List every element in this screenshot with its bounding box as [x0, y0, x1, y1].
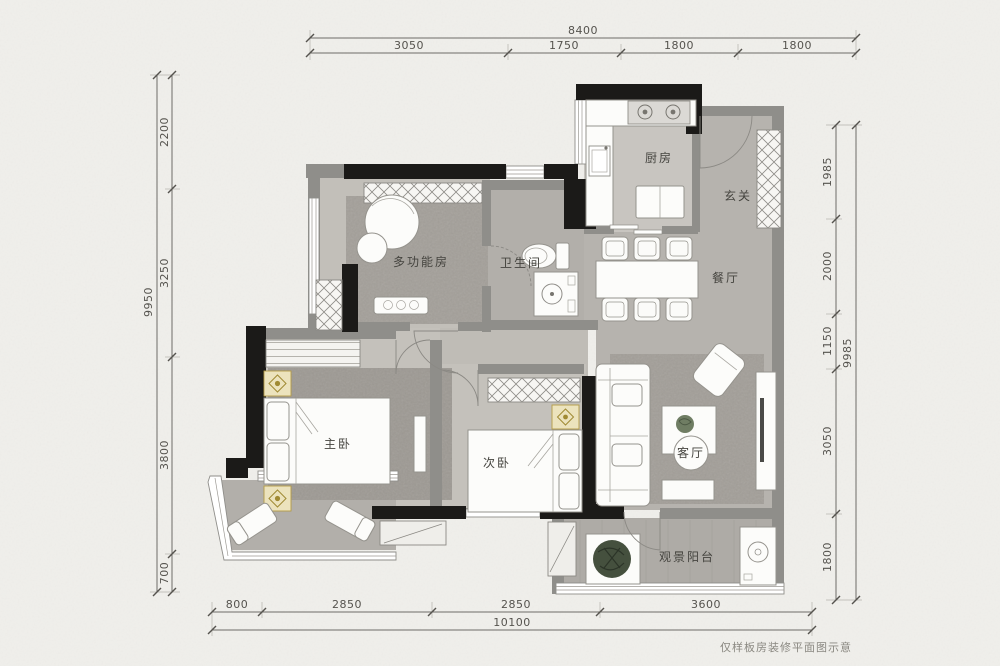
dim-bottom-total: 10100 — [493, 616, 531, 629]
room-label-dining: 餐厅 — [712, 270, 740, 285]
tv-bench-icon — [662, 480, 714, 500]
fridge-icon — [636, 186, 684, 218]
room-label-bathroom: 卫生间 — [500, 256, 542, 270]
stove-icon — [628, 101, 690, 124]
dining-set — [596, 237, 698, 321]
dim-left-seg-1: 3250 — [158, 258, 171, 288]
dim-top-seg-0: 3050 — [394, 39, 424, 52]
dim-left-seg-0: 2200 — [158, 117, 171, 147]
dim-bottom-seg-0: 800 — [226, 598, 249, 611]
floor-plan-page: 厨房 玄关 卫生间 餐厅 多功能房 主卧 次卧 客厅 观景阳台 8400 305… — [0, 0, 1000, 666]
room-label-foyer: 玄关 — [724, 188, 752, 203]
room-label-second: 次卧 — [483, 456, 511, 470]
bed-icon — [468, 430, 582, 512]
second-room-desk — [488, 378, 580, 402]
corridor-cabinet — [316, 280, 342, 330]
plant-icon — [676, 415, 694, 433]
dim-top-seg-1: 1750 — [549, 39, 579, 52]
dim-right-total: 9985 — [841, 338, 854, 368]
room-label-master: 主卧 — [324, 437, 352, 451]
dim-top-seg-2: 1800 — [664, 39, 694, 52]
tv-console-icon — [756, 372, 776, 490]
sofa-icon — [596, 364, 650, 506]
floor-plan-canvas: 厨房 玄关 卫生间 餐厅 多功能房 主卧 次卧 客厅 观景阳台 8400 305… — [0, 0, 1000, 666]
vanity-sink-icon — [534, 272, 578, 316]
dim-top-total: 8400 — [568, 24, 598, 37]
kitchen-left-window — [575, 100, 586, 164]
multi-top-window — [506, 166, 544, 178]
dim-left-seg-2: 3800 — [158, 440, 171, 470]
nightstand-icon — [264, 371, 291, 396]
room-label-balcony: 观景阳台 — [659, 549, 715, 564]
nightstand-icon — [552, 405, 579, 429]
dim-bottom-seg-2: 2850 — [501, 598, 531, 611]
dim-top-seg-3: 1800 — [782, 39, 812, 52]
room-label-living: 客厅 — [677, 445, 705, 460]
washer-icon — [740, 527, 776, 585]
dim-left-total: 9950 — [142, 287, 155, 317]
master-tv-console — [414, 416, 426, 472]
dim-right-seg-2: 1150 — [821, 326, 834, 356]
master-wardrobe — [266, 340, 360, 367]
dim-bottom-seg-3: 3600 — [691, 598, 721, 611]
plant-icon — [593, 540, 631, 578]
dim-left-seg-3: 700 — [158, 562, 171, 585]
footer-note: 仅样板房装修平面图示意 — [720, 640, 852, 654]
dining-table-icon — [596, 261, 698, 298]
room-label-kitchen: 厨房 — [645, 150, 673, 165]
room-label-multi: 多功能房 — [393, 254, 449, 269]
dim-right-seg-0: 1985 — [821, 157, 834, 187]
foyer-shoe-cabinet — [757, 130, 781, 228]
dim-right-seg-1: 2000 — [821, 251, 834, 281]
bench-icon — [374, 297, 428, 314]
sink-icon — [589, 146, 610, 176]
dim-right-seg-4: 1800 — [821, 542, 834, 572]
dim-bottom-seg-1: 2850 — [332, 598, 362, 611]
dim-right-seg-3: 3050 — [821, 426, 834, 456]
